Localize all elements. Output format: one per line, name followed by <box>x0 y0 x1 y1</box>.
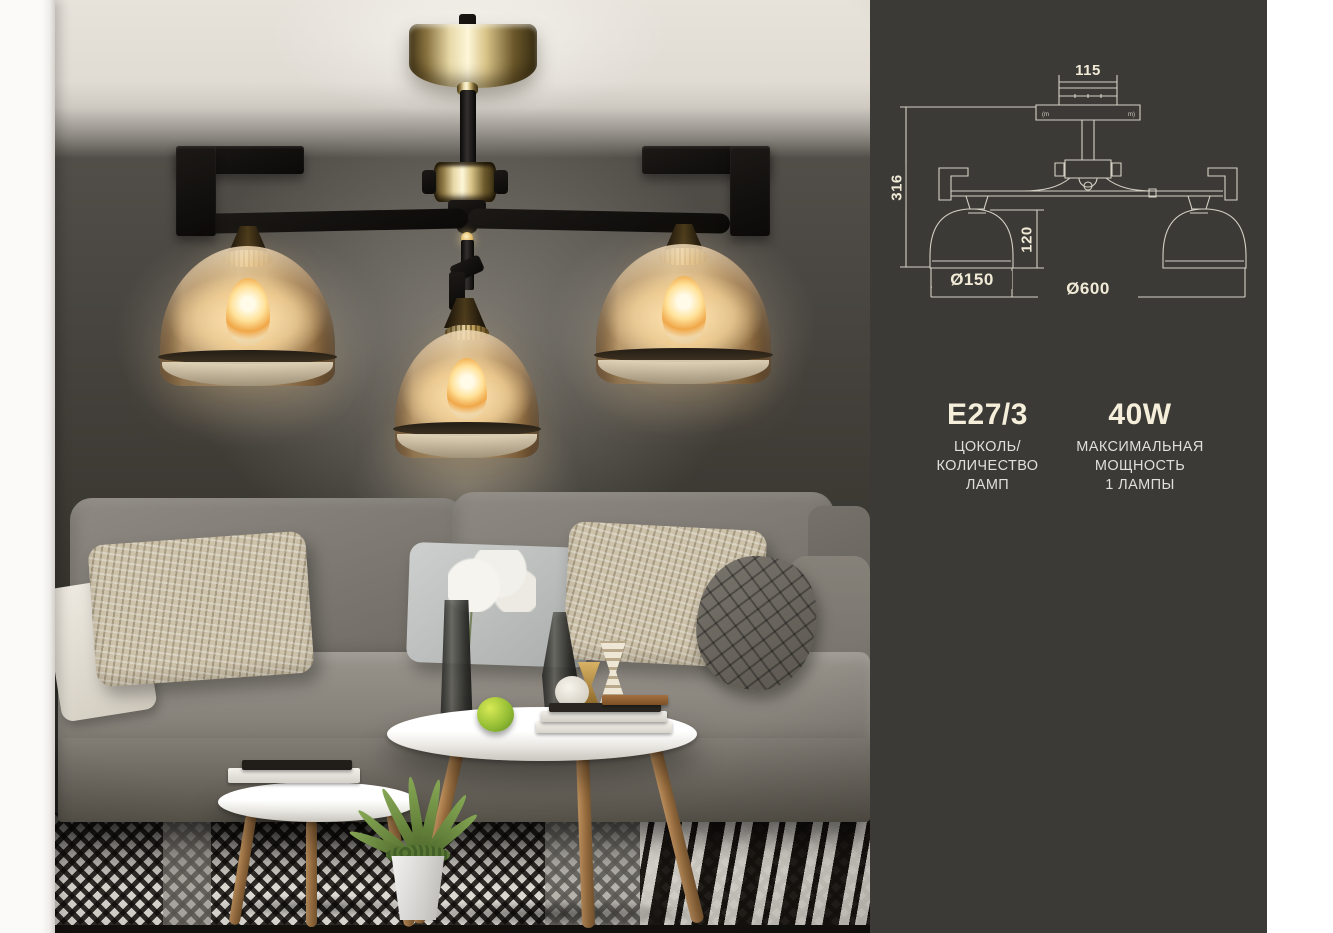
book-dark <box>242 760 352 770</box>
dim-line-316 <box>900 107 1036 267</box>
shade-left-outline <box>930 209 1013 268</box>
side-table-leg <box>306 819 317 927</box>
shade-lip <box>397 434 537 458</box>
mounting-plate <box>1059 88 1117 105</box>
wooden-box <box>602 695 668 705</box>
bracket-left-outline <box>939 168 968 200</box>
bracket-right-outline <box>1208 168 1237 200</box>
ceiling-rod <box>460 90 476 168</box>
spec-socket-label: ЦОКОЛЬ/ КОЛИЧЕСТВО ЛАМП <box>905 438 1070 495</box>
bulb-right <box>662 276 706 344</box>
spec-label-line: ЛАМП <box>905 476 1070 495</box>
green-apple <box>477 697 514 732</box>
spec-label-line: ЦОКОЛЬ/ <box>905 438 1070 457</box>
dim-label-fixture-diameter: Ø600 <box>1038 280 1138 298</box>
wall-corner <box>0 0 55 933</box>
canopy-outline <box>1036 105 1140 120</box>
spec-label-line: КОЛИЧЕСТВО <box>905 457 1070 476</box>
book <box>536 721 672 733</box>
dim-line-120 <box>990 210 1044 268</box>
canopy-mark-right: m) <box>1128 112 1135 118</box>
hub-outline <box>1055 160 1121 178</box>
dim-label-shade-height: 120 <box>1019 218 1036 262</box>
bracket-left-side <box>176 146 216 236</box>
spec-label-line: МОЩНОСТЬ <box>1055 457 1225 476</box>
room-photo <box>0 0 870 933</box>
rug-band <box>163 813 211 933</box>
stem-outline <box>1082 120 1094 160</box>
dim-label-shade-diameter: Ø150 <box>932 271 1012 289</box>
spec-power-label: МАКСИМАЛЬНАЯ МОЩНОСТЬ 1 ЛАМПЫ <box>1055 438 1225 495</box>
spec-label-line: МАКСИМАЛЬНАЯ <box>1055 438 1225 457</box>
product-card: (m m) 115 316 120 Ø150 Ø600 E27/3 ЦОКОЛЬ… <box>0 0 1333 933</box>
pillow-beige-left <box>87 531 314 688</box>
shade-lip <box>598 360 769 384</box>
dim-label-height: 316 <box>889 166 906 210</box>
spec-label-line: 1 ЛАМПЫ <box>1055 476 1225 495</box>
center-hub <box>434 162 496 202</box>
bulb-center <box>447 358 487 420</box>
ceiling-canopy <box>409 24 537 88</box>
dim-label-canopy-width: 115 <box>1058 62 1118 79</box>
spec-socket-value: E27/3 <box>905 398 1070 432</box>
right-margin <box>1267 0 1333 933</box>
bracket-right-side <box>730 146 770 236</box>
spec-panel: (m m) 115 316 120 Ø150 Ø600 E27/3 ЦОКОЛЬ… <box>870 0 1267 933</box>
spec-power-value: 40W <box>1055 398 1225 432</box>
book <box>228 768 360 783</box>
canopy-mark-left: (m <box>1042 112 1049 118</box>
hub-nub-right <box>494 170 508 194</box>
shade-right-outline <box>1163 209 1246 268</box>
book <box>541 711 667 722</box>
bulb-left <box>226 278 270 346</box>
shade-lip <box>162 362 333 386</box>
hub-nub-left <box>422 170 436 194</box>
